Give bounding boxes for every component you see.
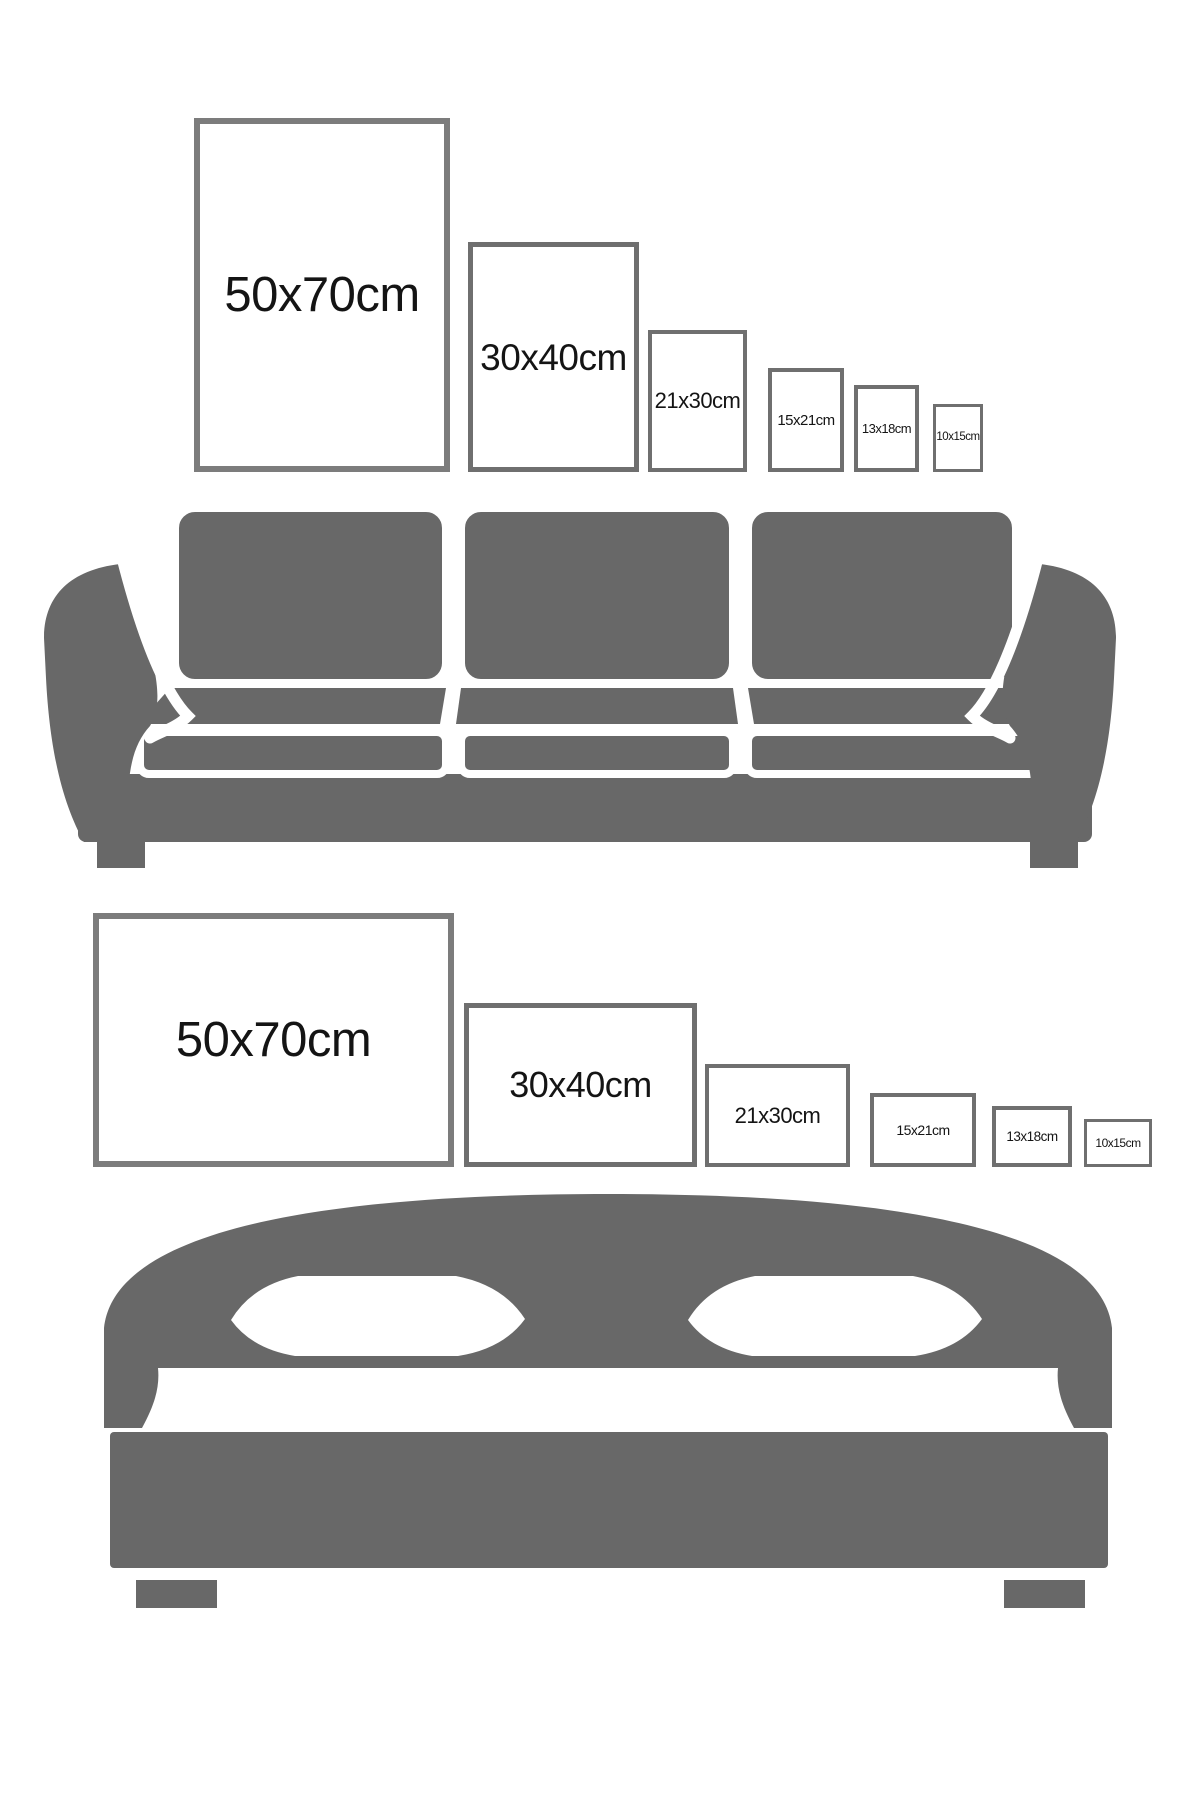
bed-pillow-left [231,1276,525,1356]
frame-landscape-30x40: 30x40cm [464,1003,697,1167]
frame-size-label: 21x30cm [735,1105,821,1127]
sofa-illustration [0,478,1200,878]
sofa-base [78,774,1092,842]
frame-size-label: 13x18cm [862,422,911,435]
frame-size-label: 10x15cm [1095,1137,1140,1149]
bed-foot-right [1004,1580,1085,1608]
frame-landscape-15x21: 15x21cm [870,1093,976,1167]
bed-pillow-right [688,1276,982,1356]
sofa-back-cushion [175,508,446,683]
sofa-silhouette [44,508,1116,868]
frame-landscape-13x18: 13x18cm [992,1106,1072,1167]
frame-landscape-10x15: 10x15cm [1084,1119,1152,1167]
frame-size-label: 15x21cm [896,1123,949,1137]
frame-size-label: 50x70cm [224,271,419,320]
frame-portrait-30x40: 30x40cm [468,242,639,472]
size-guide-infographic: 50x70cm 30x40cm 21x30cm 15x21cm 13x18cm … [0,0,1200,1800]
bed-silhouette [104,1194,1112,1608]
frame-portrait-15x21: 15x21cm [768,368,844,472]
frame-size-label: 30x40cm [480,339,627,376]
sofa-seat-cushion [461,732,733,774]
frame-size-label: 21x30cm [655,390,741,412]
frame-portrait-21x30: 21x30cm [648,330,747,472]
frame-size-label: 10x15cm [936,432,979,444]
bed-foot-left [136,1580,217,1608]
frame-landscape-21x30: 21x30cm [705,1064,850,1167]
sofa-back-cushion [748,508,1016,683]
frame-portrait-10x15: 10x15cm [933,404,983,472]
sofa-back-cushion [461,508,733,683]
frame-size-label: 15x21cm [777,413,834,428]
sofa-seat-cushion [140,732,446,774]
frame-portrait-13x18: 13x18cm [854,385,919,472]
bed-base [110,1432,1108,1568]
frame-size-label: 13x18cm [1006,1130,1057,1144]
frame-landscape-50x70: 50x70cm [93,913,454,1167]
bed-illustration [0,1180,1200,1620]
sofa-seat-deck [456,688,738,724]
frame-portrait-50x70: 50x70cm [194,118,450,472]
frame-size-label: 30x40cm [509,1067,652,1103]
frame-size-label: 50x70cm [176,1016,371,1065]
